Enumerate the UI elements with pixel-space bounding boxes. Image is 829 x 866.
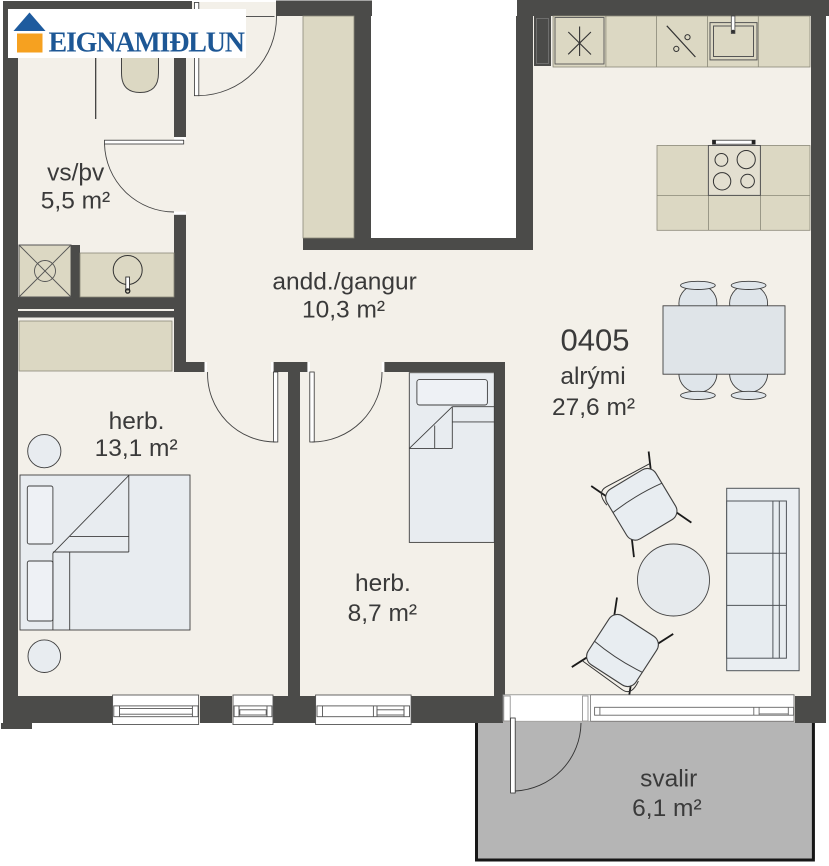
svg-text:10,3 m²: 10,3 m² [302,296,385,323]
svg-text:8,7 m²: 8,7 m² [348,600,417,627]
svg-text:6,1 m²: 6,1 m² [632,795,701,822]
svg-text:27,6 m²: 27,6 m² [552,394,635,421]
svg-text:svalir: svalir [640,766,697,793]
svg-text:EIGNAMIÐLUN: EIGNAMIÐLUN [49,28,245,59]
svg-text:13,1 m²: 13,1 m² [95,435,178,462]
svg-text:andd./gangur: andd./gangur [272,268,416,295]
svg-text:alrými: alrými [560,363,625,390]
svg-text:herb.: herb. [355,570,411,597]
svg-text:0405: 0405 [561,323,630,358]
svg-text:5,5 m²: 5,5 m² [41,187,110,214]
svg-text:herb.: herb. [109,408,165,435]
svg-text:vs/þv: vs/þv [47,160,105,187]
